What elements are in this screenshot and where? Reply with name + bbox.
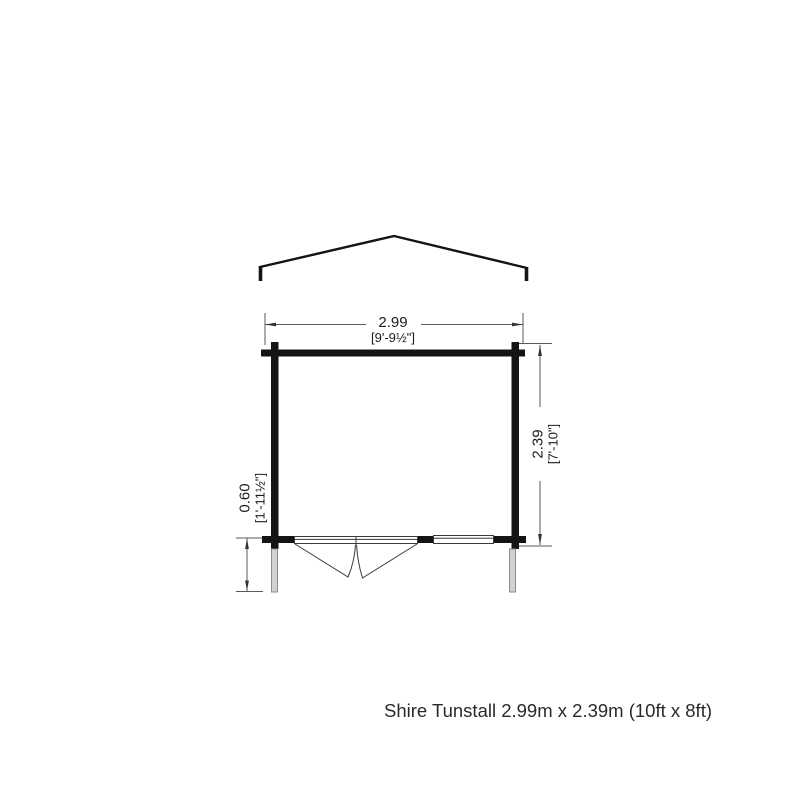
right-wall	[512, 342, 520, 549]
door-swing-right	[357, 544, 418, 578]
floor-plan-drawing	[0, 0, 800, 800]
canopy-post-left	[272, 549, 278, 592]
window-frame	[434, 536, 494, 544]
double-door	[295, 537, 418, 579]
product-caption: Shire Tunstall 2.99m x 2.39m (10ft x 8ft…	[384, 700, 712, 722]
overhang-dimension-graphics	[236, 538, 263, 592]
overhang-dimension-metric: 0.60	[237, 483, 253, 512]
width-arrow-right	[512, 323, 523, 327]
floor-plan-canvas: 2.99 [9'-9½"] 2.39 [7'-10"] 0.60 [1'-11½…	[0, 0, 800, 800]
overhang-dimension-label: 0.60 [1'-11½"]	[237, 473, 266, 523]
top-wall	[261, 350, 525, 357]
depth-dimension-label: 2.39 [7'-10"]	[530, 424, 559, 464]
depth-arrow-bottom	[538, 534, 542, 545]
width-dimension-metric: 2.99	[378, 315, 407, 331]
width-dimension-imperial: [9'-9½"]	[371, 331, 415, 345]
depth-arrow-top	[538, 345, 542, 356]
bottom-wall-right-segment	[494, 536, 527, 543]
bottom-wall-mid-segment	[417, 536, 434, 543]
left-wall	[271, 342, 279, 549]
depth-dimension-metric: 2.39	[530, 429, 546, 458]
depth-dimension-imperial: [7'-10"]	[546, 424, 560, 464]
roof-ridge-line	[260, 236, 527, 268]
overhang-arrow-bottom	[245, 581, 249, 592]
door-swing-left	[295, 544, 356, 577]
width-arrow-left	[265, 323, 276, 327]
walls	[261, 342, 526, 549]
overhang-dimension-imperial: [1'-11½"]	[253, 473, 267, 523]
overhang-arrow-top	[245, 539, 249, 550]
front-window	[434, 536, 494, 544]
canopy-post-right	[510, 549, 516, 592]
bottom-wall-left-segment	[262, 536, 295, 543]
roof-outline	[260, 236, 527, 281]
canopy-posts	[272, 549, 516, 592]
